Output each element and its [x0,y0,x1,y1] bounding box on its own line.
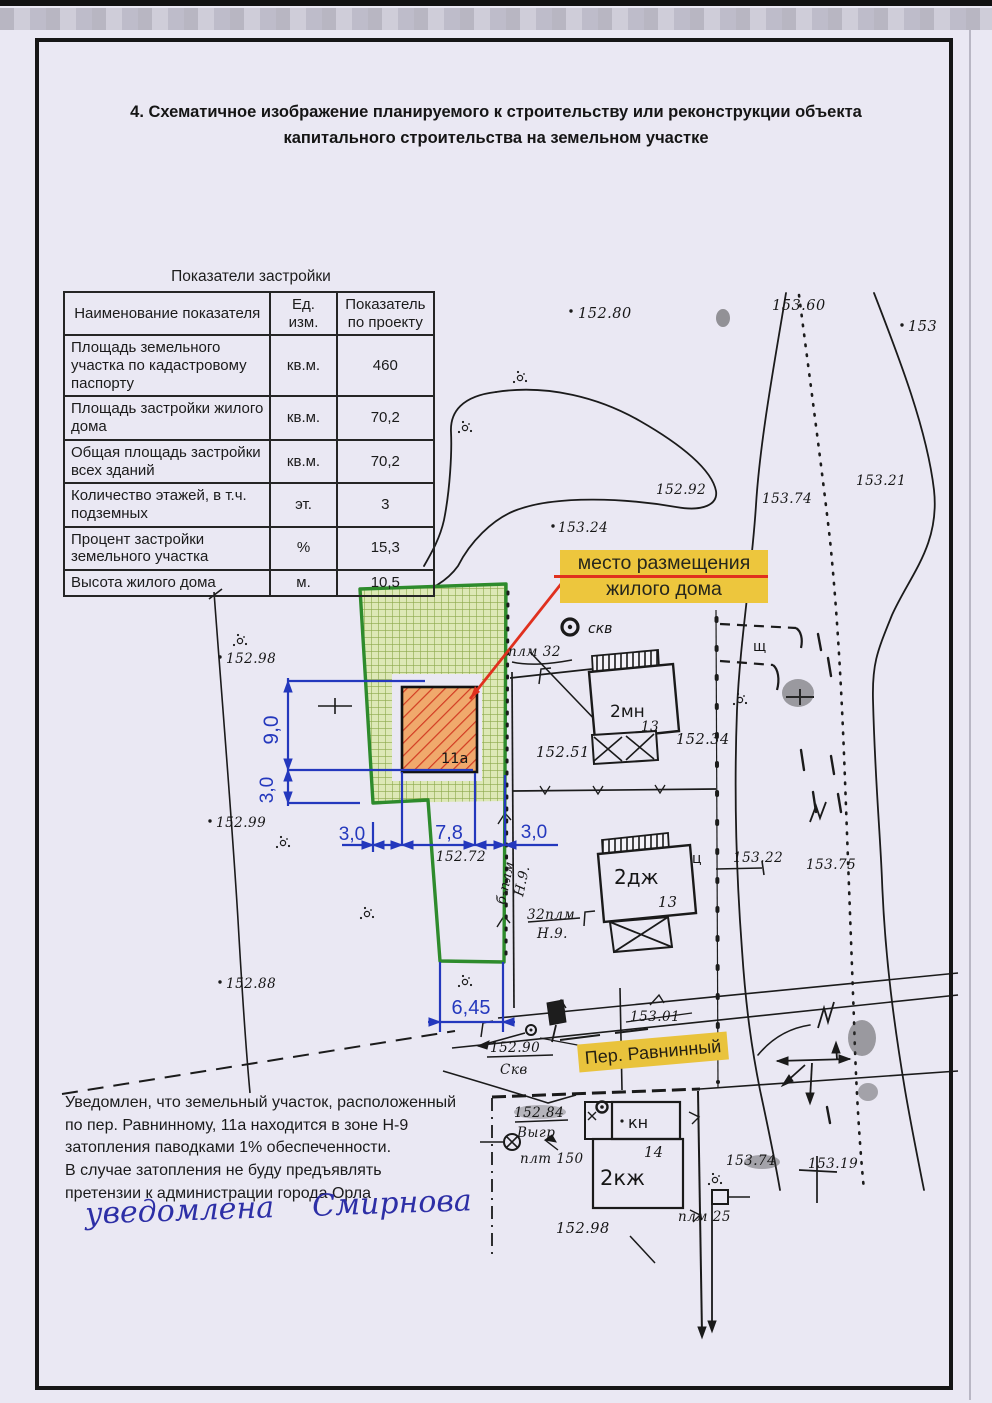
header-unit: Ед. изм. [270,292,336,335]
indicator-unit: % [270,527,336,570]
table-row: Процент застройки земельного участка % 1… [64,527,434,570]
table-row: Высота жилого дома м. 10,5 [64,570,434,596]
indicators-block: Показатели застройки Наименование показа… [63,268,435,597]
indicator-unit: м. [270,570,336,596]
table-row: Общая площадь застройки всех зданий кв.м… [64,440,434,483]
indicator-name: Общая площадь застройки всех зданий [64,440,270,483]
indicator-value: 70,2 [337,440,434,483]
notice-line: затопления паводками 1% обеспеченности. [65,1137,515,1160]
indicator-name: Количество этажей, в т.ч. подземных [64,483,270,526]
notice-line: Уведомлен, что земельный участок, распол… [65,1092,515,1115]
indicator-name: Площадь земельного участка по кадастрово… [64,335,270,396]
table-row: Количество этажей, в т.ч. подземных эт. … [64,483,434,526]
document-page: 9,0 3,0 3,0 7,8 3,0 6,45 152.72 152.80 1… [0,0,992,1403]
table-title: Показатели застройки [111,268,391,286]
indicator-unit: кв.м. [270,396,336,439]
indicator-name: Площадь застройки жилого дома [64,396,270,439]
indicator-unit: кв.м. [270,440,336,483]
page-title: 4. Схематичное изображение планируемого … [60,100,932,151]
indicator-value: 460 [337,335,434,396]
indicator-value: 70,2 [337,396,434,439]
callout-line-2: жилого дома [560,578,768,601]
indicators-table: Наименование показателя Ед. изм. Показат… [63,291,435,597]
header-value: Показатель по проекту [337,292,434,335]
notice-line: В случае затопления не буду предъявлять [65,1160,515,1183]
table-row: Площадь земельного участка по кадастрово… [64,335,434,396]
title-line-1: 4. Схематичное изображение планируемого … [60,100,932,126]
callout-line-1: место размещения [560,552,768,575]
indicator-name: Процент застройки земельного участка [64,527,270,570]
indicator-name: Высота жилого дома [64,570,270,596]
indicator-value: 15,3 [337,527,434,570]
indicator-value: 3 [337,483,434,526]
title-line-2: капитального строительства на земельном … [60,126,932,152]
indicator-value: 10,5 [337,570,434,596]
notice-line: по пер. Равнинному, 11а находится в зоне… [65,1115,515,1138]
indicator-unit: эт. [270,483,336,526]
header-name: Наименование показателя [64,292,270,335]
table-header-row: Наименование показателя Ед. изм. Показат… [64,292,434,335]
house-placement-callout: место размещения жилого дома [560,550,768,603]
table-row: Площадь застройки жилого дома кв.м. 70,2 [64,396,434,439]
indicator-unit: кв.м. [270,335,336,396]
